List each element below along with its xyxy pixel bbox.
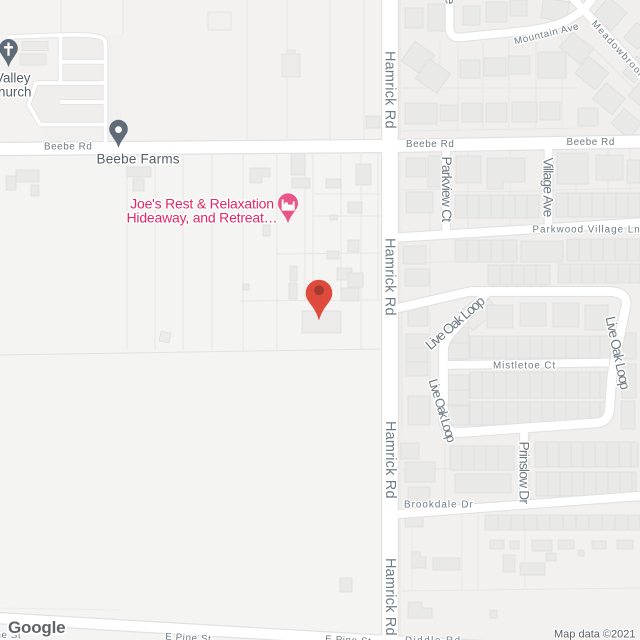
svg-text:Beebe Rd: Beebe Rd	[44, 141, 92, 152]
svg-text:Parkwood Village Ln: Parkwood Village Ln	[533, 225, 640, 236]
svg-text:Hamrick Rd: Hamrick Rd	[382, 421, 398, 499]
svg-text:Hamrick Rd: Hamrick Rd	[382, 238, 398, 316]
svg-text:Beebe Farms: Beebe Farms	[97, 152, 180, 167]
svg-text:Parkview Ct: Parkview Ct	[439, 157, 454, 223]
svg-text:Valley: Valley	[0, 71, 31, 86]
svg-text:Brookdale Dr: Brookdale Dr	[404, 500, 474, 511]
svg-text:Church: Church	[0, 85, 32, 100]
svg-text:Hamrick Rd: Hamrick Rd	[382, 558, 398, 636]
svg-text:Hideaway, and Retreat…: Hideaway, and Retreat…	[127, 210, 278, 226]
svg-text:Beebe Rd: Beebe Rd	[406, 139, 454, 150]
svg-text:Beebe Rd: Beebe Rd	[567, 137, 615, 148]
svg-text:Hamrick Rd: Hamrick Rd	[382, 51, 398, 129]
svg-text:Diddle Rd: Diddle Rd	[405, 636, 462, 640]
svg-text:Map data ©2021: Map data ©2021	[554, 629, 636, 640]
svg-text:E Pine St: E Pine St	[165, 632, 212, 640]
svg-text:Village Ave: Village Ave	[541, 158, 556, 218]
svg-text:Google: Google	[8, 618, 65, 637]
svg-text:Prinslow Dr: Prinslow Dr	[517, 442, 532, 505]
svg-text:Mistletoe Ct: Mistletoe Ct	[493, 361, 556, 372]
